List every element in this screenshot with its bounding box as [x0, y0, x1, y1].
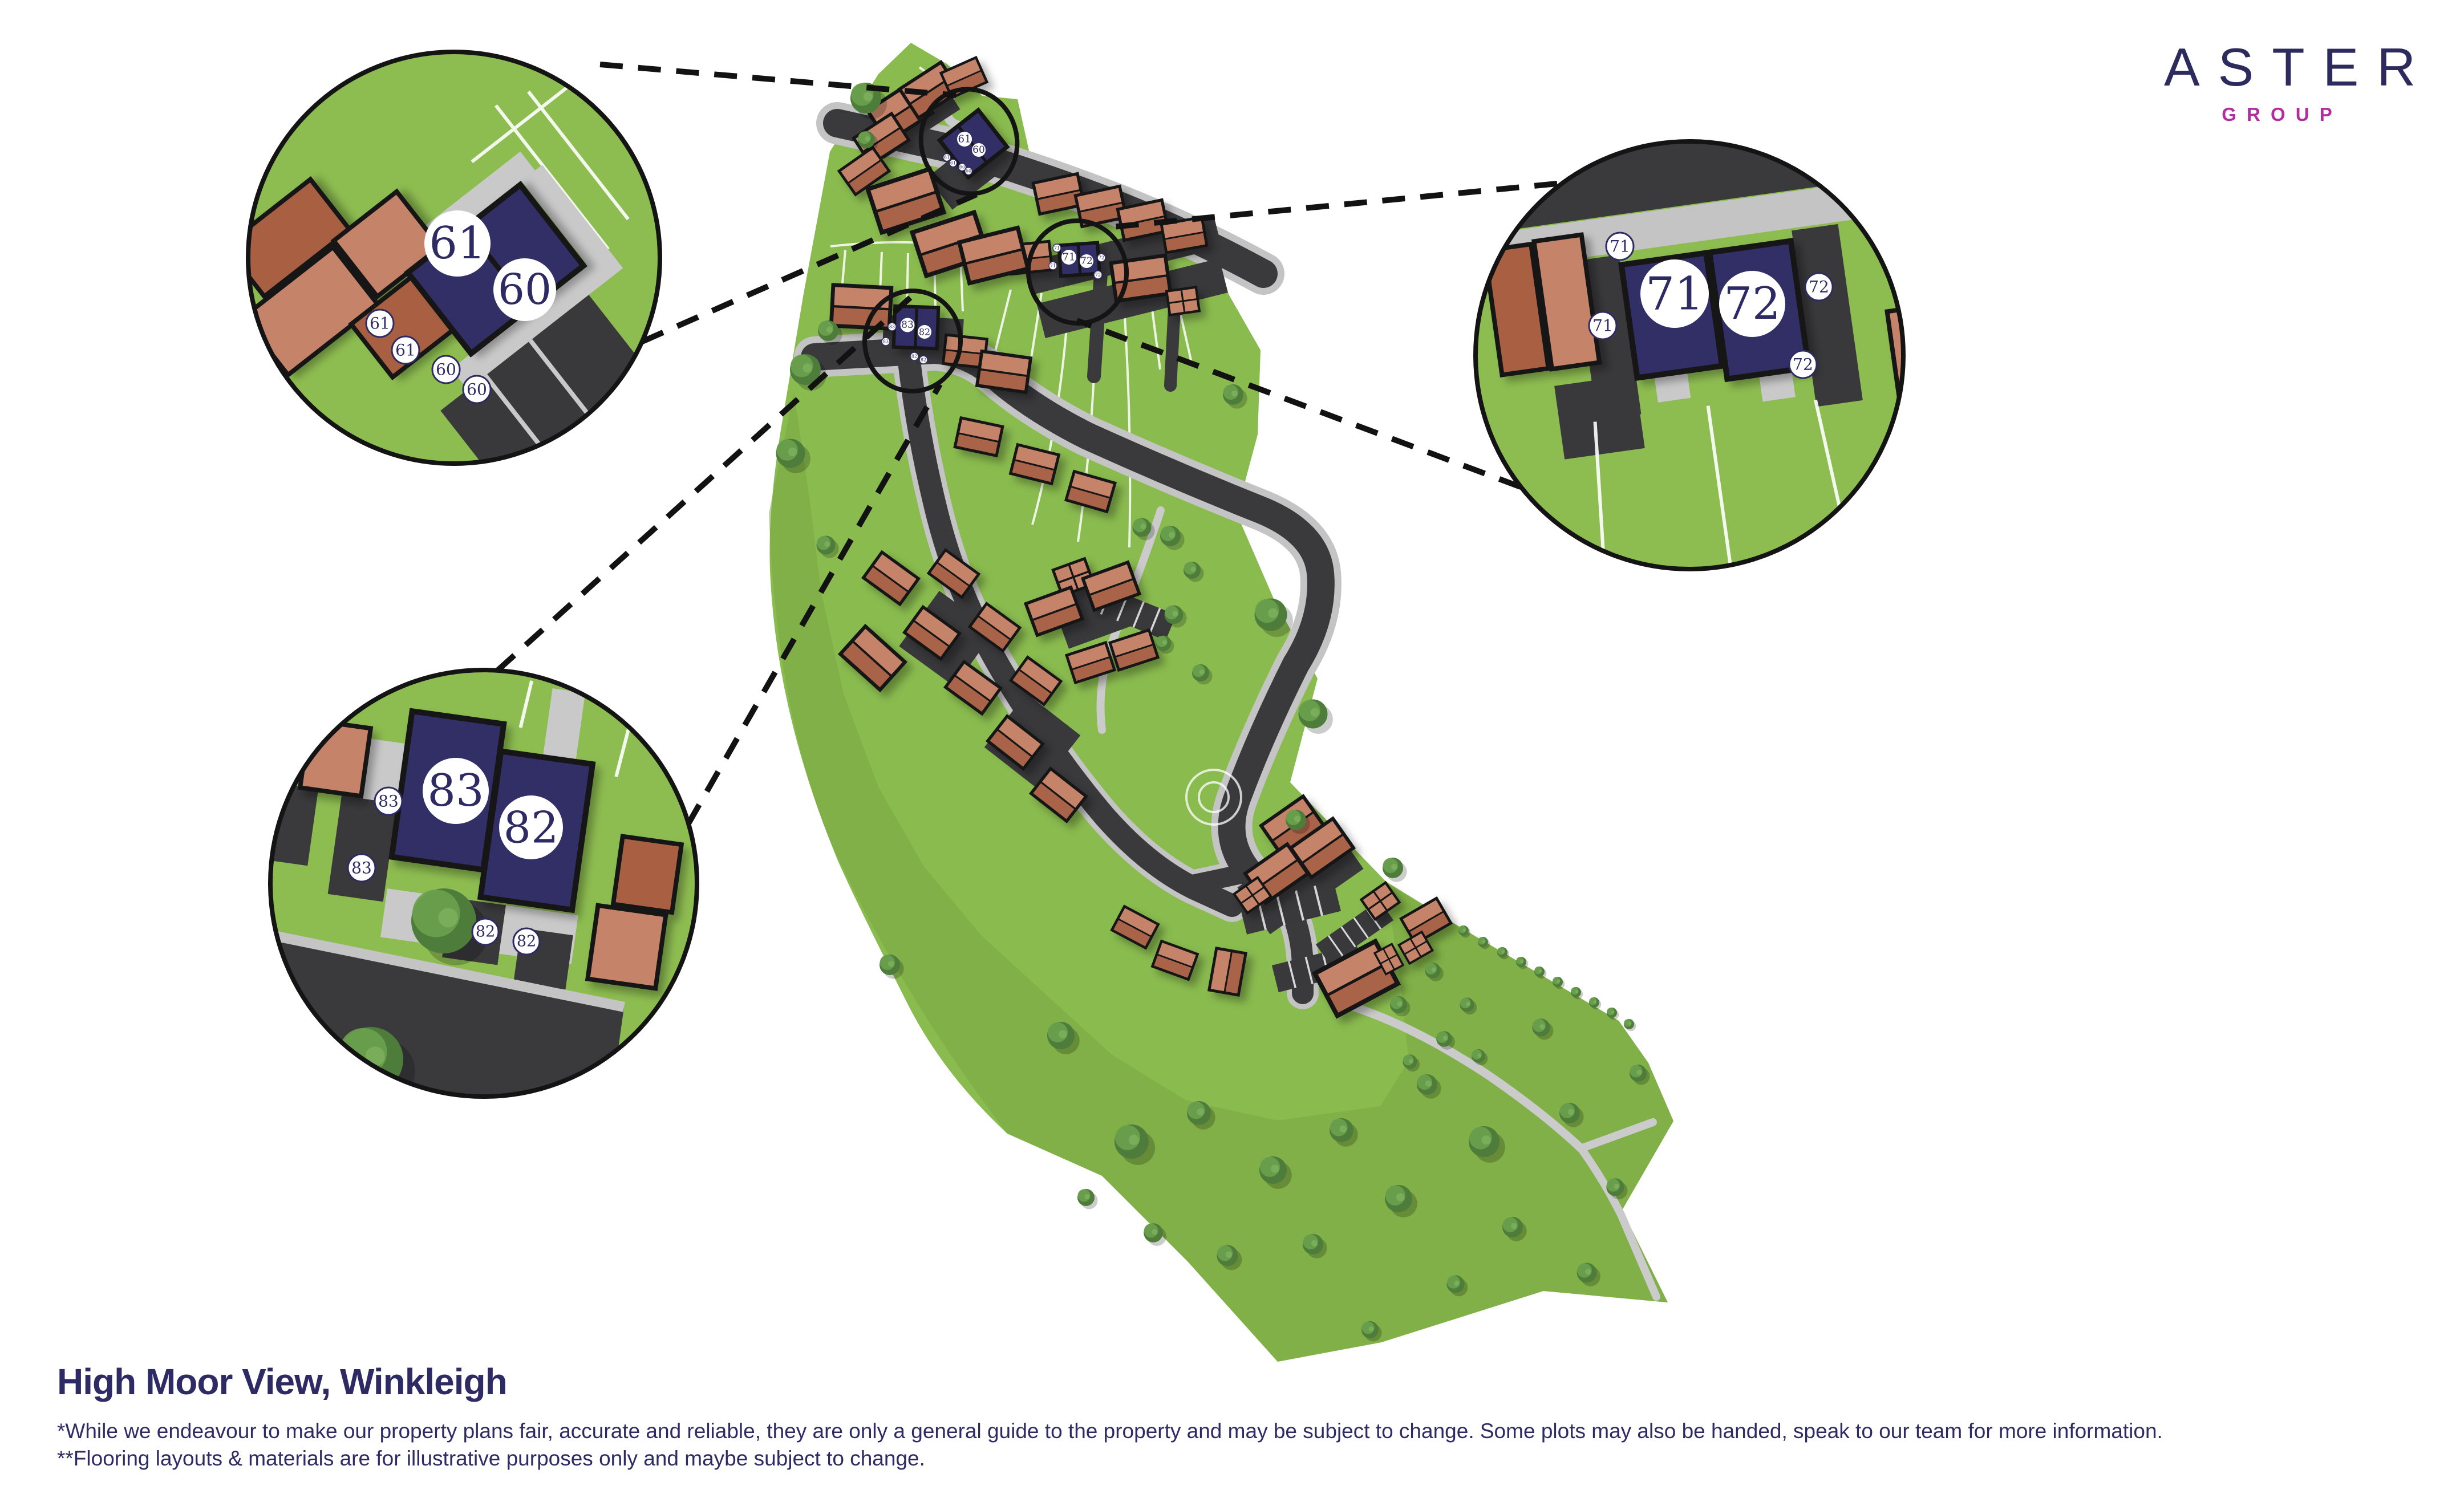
svg-text:60: 60	[436, 360, 456, 379]
footer: High Moor View, Winkleigh *While we ende…	[57, 1361, 2424, 1472]
svg-text:61: 61	[395, 341, 416, 360]
map-label-61: 61	[958, 133, 971, 145]
svg-text:71: 71	[1054, 246, 1060, 251]
callout-61-60: 61 60 61 61 60 60	[149, 7, 851, 716]
svg-text:71: 71	[1592, 316, 1613, 335]
callout2-label-72: 72	[1724, 278, 1780, 330]
svg-text:72: 72	[1809, 278, 1829, 297]
map-label-82: 82	[919, 327, 930, 338]
callout1-label-60: 60	[498, 265, 552, 314]
svg-text:83: 83	[378, 792, 399, 811]
disclaimer-line-1: *While we endeavour to make our property…	[57, 1418, 2424, 1445]
svg-text:61: 61	[370, 314, 390, 333]
map-label-83: 83	[901, 319, 914, 331]
map-label-71: 71	[1063, 251, 1076, 263]
callout2-label-71: 71	[1646, 267, 1704, 320]
logo-brand: ASTER	[2146, 36, 2408, 98]
svg-text:72: 72	[1095, 273, 1101, 278]
svg-text:71: 71	[1610, 237, 1630, 256]
svg-text:72: 72	[1099, 255, 1104, 261]
svg-text:83: 83	[351, 859, 372, 878]
logo-sub: GROUP	[2146, 104, 2408, 125]
disclaimer: *While we endeavour to make our property…	[57, 1418, 2424, 1472]
svg-text:60: 60	[966, 169, 971, 174]
svg-text:82: 82	[921, 358, 926, 363]
svg-text:82: 82	[517, 933, 536, 951]
map-label-60: 60	[972, 144, 985, 156]
svg-text:72: 72	[1793, 355, 1813, 374]
map-label-72: 72	[1080, 255, 1093, 267]
svg-text:60: 60	[467, 380, 487, 399]
page: { "logo": { "brand": "ASTER", "sub": "GR…	[0, 0, 2464, 1490]
site-plan: 61 60 61 61 60 60 71 72 71 71 72 72 83	[0, 0, 2464, 1490]
svg-text:71: 71	[1050, 263, 1056, 269]
callout-71-72: 71 72 71 71 72 72	[1422, 70, 1984, 606]
svg-text:83: 83	[883, 339, 889, 344]
svg-text:82: 82	[911, 354, 917, 359]
callout3-label-82: 82	[504, 802, 559, 853]
callout3-label-83: 83	[427, 765, 484, 817]
aster-group-logo: ASTER GROUP	[2146, 36, 2408, 125]
page-title: High Moor View, Winkleigh	[57, 1361, 2424, 1403]
svg-text:83: 83	[889, 324, 895, 330]
main-map: 61 60 61 61 60 60 71 72 71 71 72 72 83	[497, 43, 1673, 1362]
callout-83-82: 83 82 83 83 82 82	[221, 645, 702, 1130]
svg-text:61: 61	[950, 161, 956, 166]
callout1-label-61: 61	[429, 218, 485, 269]
svg-text:60: 60	[959, 165, 965, 170]
disclaimer-line-2: **Flooring layouts & materials are for i…	[57, 1445, 2424, 1472]
svg-text:61: 61	[944, 155, 950, 160]
map-plot-82-83	[894, 306, 938, 349]
svg-text:82: 82	[476, 923, 495, 941]
